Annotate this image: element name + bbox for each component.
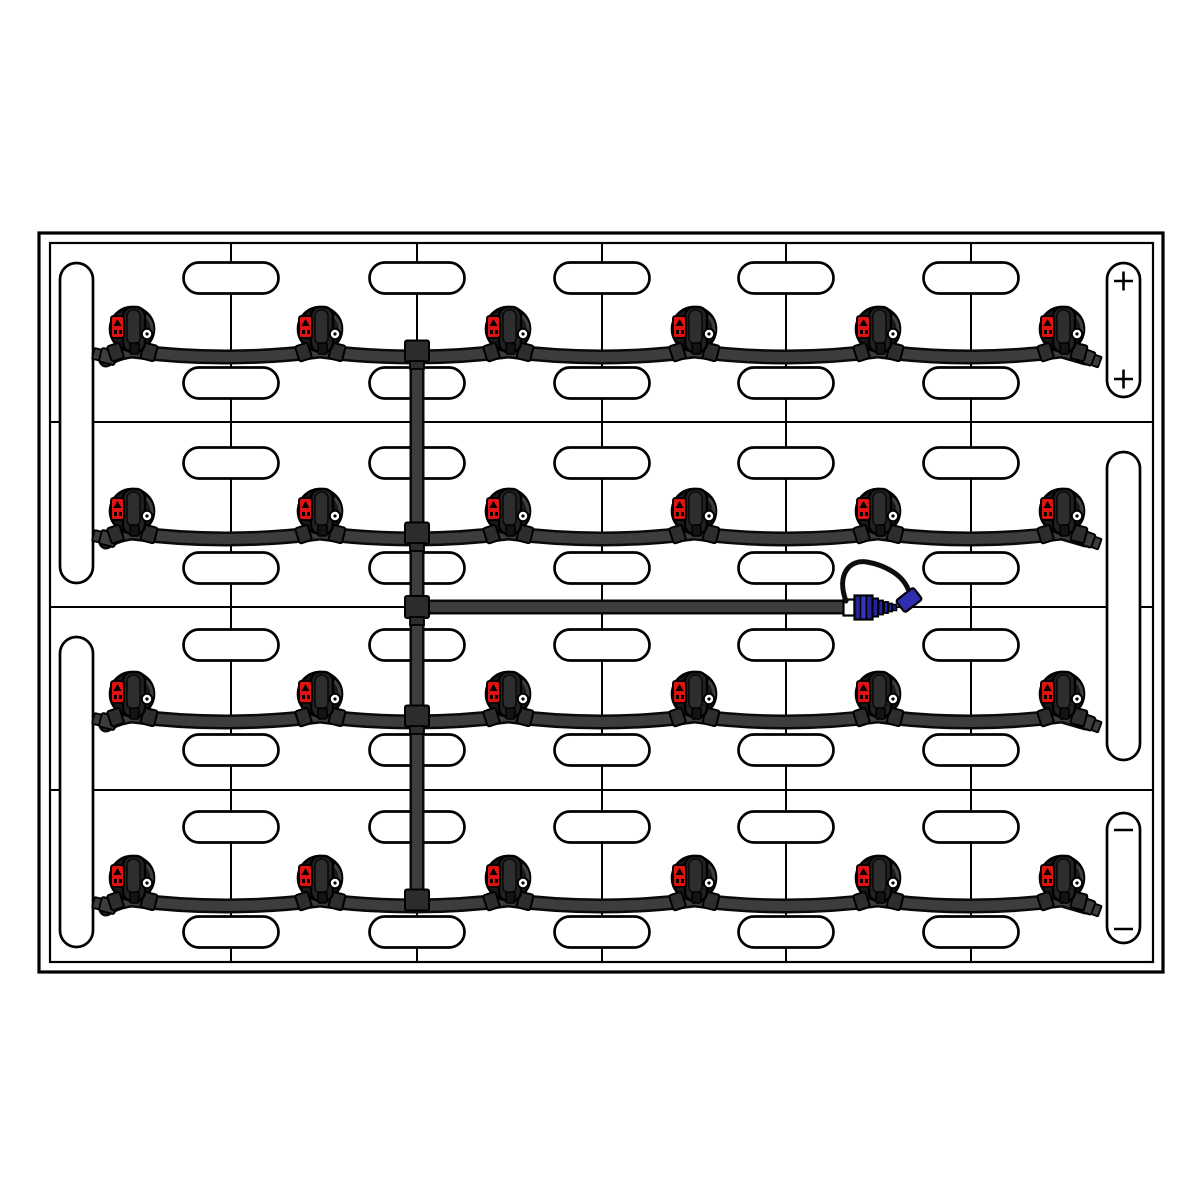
cap-eyelet-dot bbox=[1075, 697, 1078, 700]
indicator-mark bbox=[1044, 879, 1047, 883]
cap-flip-lever-inner bbox=[503, 310, 516, 344]
vent-pill bbox=[924, 553, 1019, 584]
row-tube bbox=[106, 716, 1086, 725]
tee-fitting bbox=[405, 890, 429, 911]
cap-flip-lever-inner bbox=[503, 859, 516, 893]
cap-eyelet-dot bbox=[521, 332, 524, 335]
watering-cap bbox=[483, 307, 534, 362]
cap-flip-lever-inner bbox=[1057, 492, 1070, 526]
cap-lever-notch bbox=[506, 708, 515, 719]
cap-eyelet-dot bbox=[521, 697, 524, 700]
cap-flip-lever-inner bbox=[127, 310, 140, 344]
cap-eyelet-dot bbox=[1075, 881, 1078, 884]
vent-pill bbox=[739, 630, 834, 661]
indicator-mark bbox=[1049, 330, 1052, 334]
indicator-mark bbox=[681, 512, 684, 516]
cap-lever-notch bbox=[130, 525, 139, 536]
cap-flip-lever-inner bbox=[689, 675, 702, 709]
vent-pill bbox=[184, 812, 279, 843]
indicator-mark bbox=[676, 879, 679, 883]
cap-lever-notch bbox=[318, 708, 327, 719]
cap-eyelet-dot bbox=[707, 514, 710, 517]
indicator-mark bbox=[860, 879, 863, 883]
indicator-mark bbox=[681, 695, 684, 699]
cap-eyelet-dot bbox=[891, 332, 894, 335]
cap-flip-lever-inner bbox=[315, 310, 328, 344]
coupler-rib bbox=[884, 602, 888, 613]
cap-lever-notch bbox=[876, 343, 885, 354]
cap-flip-lever-inner bbox=[873, 492, 886, 526]
indicator-mark bbox=[307, 330, 310, 334]
tee-collar bbox=[410, 361, 424, 369]
cap-lever-notch bbox=[876, 525, 885, 536]
vent-pill bbox=[184, 263, 279, 294]
coupler-tip bbox=[893, 605, 897, 611]
indicator-mark bbox=[307, 879, 310, 883]
indicator-mark bbox=[865, 330, 868, 334]
watering-cap bbox=[853, 856, 904, 911]
cap-eyelet-dot bbox=[891, 514, 894, 517]
cap-lever-notch bbox=[318, 525, 327, 536]
watering-cap bbox=[107, 672, 158, 727]
cap-eyelet-dot bbox=[333, 514, 336, 517]
vent-pill bbox=[739, 448, 834, 479]
indicator-mark bbox=[681, 879, 684, 883]
watering-cap bbox=[483, 856, 534, 911]
vent-pill bbox=[739, 368, 834, 399]
vent-pill bbox=[739, 812, 834, 843]
feed-tee-fitting bbox=[405, 596, 429, 618]
indicator-mark bbox=[676, 330, 679, 334]
indicator-mark bbox=[114, 695, 117, 699]
vent-pill bbox=[184, 368, 279, 399]
battery-watering-system-diagram bbox=[0, 0, 1200, 1200]
cap-lever-notch bbox=[506, 343, 515, 354]
indicator-mark bbox=[495, 879, 498, 883]
indicator-mark bbox=[114, 330, 117, 334]
feed-tee-collar bbox=[410, 617, 424, 625]
indicator-mark bbox=[119, 695, 122, 699]
cap-lever-notch bbox=[130, 892, 139, 903]
indicator-mark bbox=[681, 330, 684, 334]
cap-flip-lever-inner bbox=[873, 310, 886, 344]
indicator-mark bbox=[1049, 695, 1052, 699]
cap-eyelet-dot bbox=[707, 697, 710, 700]
watering-cap bbox=[853, 489, 904, 544]
vent-pill bbox=[924, 263, 1019, 294]
indicator-mark bbox=[119, 330, 122, 334]
cap-flip-lever-inner bbox=[503, 492, 516, 526]
tee-collar bbox=[410, 726, 424, 734]
watering-cap bbox=[107, 307, 158, 362]
cap-eyelet-dot bbox=[333, 881, 336, 884]
vent-pill bbox=[555, 553, 650, 584]
cap-eyelet-dot bbox=[1075, 514, 1078, 517]
indicator-mark bbox=[302, 879, 305, 883]
cap-lever-notch bbox=[506, 525, 515, 536]
cap-eyelet-dot bbox=[145, 332, 148, 335]
coupler-collar bbox=[873, 599, 879, 617]
cap-flip-lever-inner bbox=[315, 675, 328, 709]
vent-pill bbox=[924, 812, 1019, 843]
cap-lever-notch bbox=[506, 892, 515, 903]
indicator-mark bbox=[302, 695, 305, 699]
watering-cap bbox=[483, 489, 534, 544]
vent-pill bbox=[924, 917, 1019, 948]
watering-cap bbox=[1037, 307, 1088, 362]
vent-pill bbox=[184, 630, 279, 661]
cap-eyelet-dot bbox=[145, 697, 148, 700]
indicator-mark bbox=[860, 695, 863, 699]
vent-pill bbox=[555, 917, 650, 948]
cap-lever-notch bbox=[1060, 892, 1069, 903]
cap-lever-notch bbox=[130, 343, 139, 354]
cap-eyelet-dot bbox=[891, 697, 894, 700]
cap-lever-notch bbox=[692, 892, 701, 903]
cap-flip-lever-inner bbox=[873, 859, 886, 893]
indicator-mark bbox=[490, 512, 493, 516]
handle-pill bbox=[60, 263, 93, 583]
vent-pill bbox=[739, 917, 834, 948]
indicator-mark bbox=[865, 695, 868, 699]
row-tube bbox=[106, 351, 1086, 360]
watering-cap bbox=[295, 489, 346, 544]
indicator-mark bbox=[119, 512, 122, 516]
watering-cap bbox=[853, 672, 904, 727]
tee-fitting bbox=[405, 706, 429, 727]
indicator-mark bbox=[307, 695, 310, 699]
indicator-mark bbox=[860, 512, 863, 516]
watering-cap bbox=[669, 307, 720, 362]
cap-lever-notch bbox=[1060, 343, 1069, 354]
indicator-mark bbox=[1049, 512, 1052, 516]
cap-lever-notch bbox=[318, 892, 327, 903]
cap-flip-lever-inner bbox=[127, 859, 140, 893]
cap-flip-lever-inner bbox=[1057, 310, 1070, 344]
positive-terminal bbox=[1107, 263, 1140, 397]
cap-eyelet-dot bbox=[707, 881, 710, 884]
diagram-canvas bbox=[0, 0, 1200, 1200]
indicator-mark bbox=[302, 330, 305, 334]
negative-terminal bbox=[1107, 813, 1140, 943]
cap-flip-lever-inner bbox=[689, 859, 702, 893]
cap-lever-notch bbox=[876, 892, 885, 903]
vent-pill bbox=[370, 263, 465, 294]
cap-lever-notch bbox=[692, 343, 701, 354]
cap-flip-lever-inner bbox=[1057, 675, 1070, 709]
indicator-mark bbox=[495, 330, 498, 334]
vent-pill bbox=[924, 735, 1019, 766]
vent-pill bbox=[184, 917, 279, 948]
vent-pill bbox=[739, 263, 834, 294]
vent-pill bbox=[555, 448, 650, 479]
indicator-mark bbox=[676, 512, 679, 516]
indicator-mark bbox=[490, 330, 493, 334]
indicator-mark bbox=[119, 879, 122, 883]
indicator-mark bbox=[307, 512, 310, 516]
cap-flip-lever-inner bbox=[315, 492, 328, 526]
watering-cap bbox=[669, 856, 720, 911]
cap-eyelet-dot bbox=[333, 697, 336, 700]
coupler-rib bbox=[879, 601, 884, 615]
indicator-mark bbox=[865, 879, 868, 883]
cap-flip-lever-inner bbox=[127, 492, 140, 526]
watering-cap bbox=[295, 856, 346, 911]
cap-lever-notch bbox=[130, 708, 139, 719]
indicator-mark bbox=[1049, 879, 1052, 883]
vent-pill bbox=[184, 448, 279, 479]
coupler-rib bbox=[889, 604, 893, 612]
indicator-mark bbox=[495, 512, 498, 516]
watering-cap bbox=[107, 489, 158, 544]
cap-flip-lever-inner bbox=[1057, 859, 1070, 893]
indicator-mark bbox=[302, 512, 305, 516]
watering-cap bbox=[1037, 672, 1088, 727]
vent-pill bbox=[184, 735, 279, 766]
indicator-mark bbox=[860, 330, 863, 334]
vent-pill bbox=[924, 368, 1019, 399]
indicator-mark bbox=[114, 512, 117, 516]
indicator-mark bbox=[1044, 512, 1047, 516]
vent-pill bbox=[555, 812, 650, 843]
indicator-mark bbox=[1044, 695, 1047, 699]
cap-lever-notch bbox=[318, 343, 327, 354]
cap-eyelet-dot bbox=[145, 881, 148, 884]
cap-flip-lever-inner bbox=[689, 310, 702, 344]
indicator-mark bbox=[676, 695, 679, 699]
vent-pill bbox=[924, 448, 1019, 479]
vent-pill bbox=[739, 735, 834, 766]
cap-lever-notch bbox=[1060, 525, 1069, 536]
watering-cap bbox=[853, 307, 904, 362]
handle-pill bbox=[60, 637, 93, 947]
cap-lever-notch bbox=[1060, 708, 1069, 719]
indicator-mark bbox=[490, 695, 493, 699]
indicator-mark bbox=[865, 512, 868, 516]
cap-eyelet-dot bbox=[1075, 332, 1078, 335]
cap-lever-notch bbox=[692, 525, 701, 536]
vent-pill bbox=[555, 630, 650, 661]
watering-cap bbox=[295, 307, 346, 362]
cap-flip-lever-inner bbox=[873, 675, 886, 709]
cap-eyelet-dot bbox=[145, 514, 148, 517]
watering-cap bbox=[295, 672, 346, 727]
cap-flip-lever-inner bbox=[315, 859, 328, 893]
cap-flip-lever-inner bbox=[689, 492, 702, 526]
cap-lever-notch bbox=[692, 708, 701, 719]
vent-pill bbox=[924, 630, 1019, 661]
terminal-pill bbox=[1107, 813, 1140, 943]
vent-pill bbox=[184, 553, 279, 584]
cap-flip-lever-inner bbox=[127, 675, 140, 709]
cap-eyelet-dot bbox=[521, 881, 524, 884]
indicator-mark bbox=[114, 879, 117, 883]
indicator-mark bbox=[490, 879, 493, 883]
watering-cap bbox=[483, 672, 534, 727]
cap-flip-lever-inner bbox=[503, 675, 516, 709]
vent-pill bbox=[555, 263, 650, 294]
cap-eyelet-dot bbox=[521, 514, 524, 517]
tee-fitting bbox=[405, 341, 429, 362]
tee-fitting bbox=[405, 523, 429, 544]
cap-eyelet-dot bbox=[707, 332, 710, 335]
vent-pill bbox=[555, 735, 650, 766]
watering-cap bbox=[1037, 856, 1088, 911]
cap-lever-notch bbox=[876, 708, 885, 719]
row-tube bbox=[106, 533, 1086, 542]
vent-pill bbox=[739, 553, 834, 584]
indicator-mark bbox=[1044, 330, 1047, 334]
watering-cap bbox=[669, 489, 720, 544]
watering-cap bbox=[107, 856, 158, 911]
vent-pill bbox=[555, 368, 650, 399]
row-tube bbox=[106, 900, 1086, 909]
handle-pill bbox=[1107, 452, 1140, 760]
vent-pill bbox=[370, 917, 465, 948]
cap-eyelet-dot bbox=[891, 881, 894, 884]
tee-collar bbox=[410, 543, 424, 551]
watering-cap bbox=[669, 672, 720, 727]
watering-cap bbox=[1037, 489, 1088, 544]
cap-eyelet-dot bbox=[333, 332, 336, 335]
indicator-mark bbox=[495, 695, 498, 699]
